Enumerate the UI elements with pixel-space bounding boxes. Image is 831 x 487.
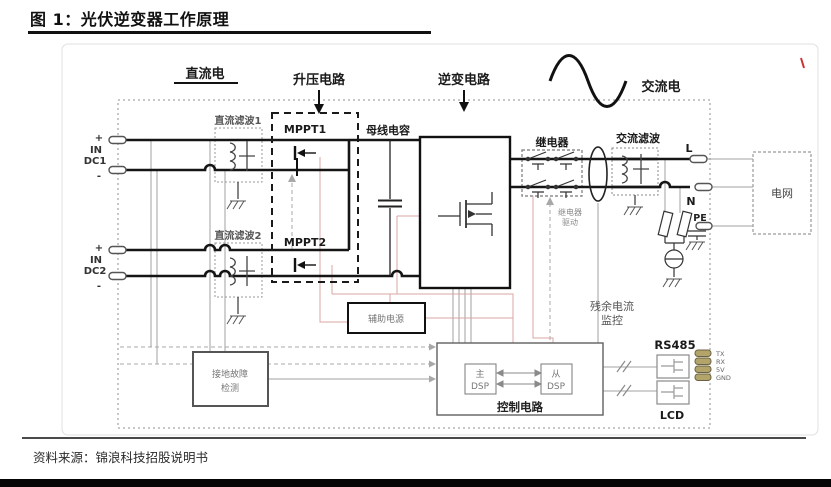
boost-section-label: 升压电路 [293,72,346,88]
control-label: 控制电路 [497,400,543,414]
mppt1-label: MPPT1 [284,123,326,136]
slave-dsp-label-1: 从 [551,369,560,380]
ac-section-label: 交流电 [641,79,680,95]
inverter-schematic: 直流电 升压电路 逆变电路 交流电 直流滤波1 直流滤波2 MPPT1 MPPT… [0,0,831,487]
rs485-label: RS485 [654,338,695,352]
main-dsp-label-2: DSP [471,382,490,392]
tx-label: TX [715,350,725,358]
grid-label: 电网 [771,187,793,200]
source-divider [22,437,806,439]
dc1-minus-label: - [97,171,101,182]
slave-dsp-label-2: DSP [547,382,566,392]
v5-label: 5V [716,366,725,374]
relay-drive-label-1: 继电器 [558,207,582,217]
main-dsp-label-1: 主 [475,368,484,380]
report-figure: 图 1：光伏逆变器工作原理 [0,0,831,487]
dc1-name-label: DC1 [84,156,107,167]
relay-box [522,150,582,196]
residual-current-label-2: 监控 [601,313,623,327]
ground-fault-label-2: 检测 [221,382,239,394]
bus-cap-label: 母线电容 [366,123,410,137]
dc-section-label: 直流电 [185,66,224,82]
dc2-in-label: IN [90,255,102,266]
dc-filter1-label: 直流滤波1 [215,114,262,127]
gnd-label: GND [716,374,731,382]
relay-drive-label-2: 驱动 [562,217,578,227]
dc2-plus-label: + [95,243,103,254]
relay-label: 继电器 [536,135,570,149]
page-bottom-bar [0,479,831,487]
neutral-terminal-label: N [686,195,695,208]
lcd-label: LCD [660,409,684,422]
dc2-name-label: DC2 [84,266,107,277]
line-terminal-label: L [685,142,692,155]
rx-label: RX [716,358,726,366]
residual-current-label-1: 残余电流 [590,299,634,313]
inverter-block [420,137,510,288]
inverter-section-label: 逆变电路 [438,72,491,88]
pe-terminal-label: PE [693,213,706,224]
dc-filter2-label: 直流滤波2 [215,229,262,242]
dc1-plus-label: + [95,133,103,144]
dc1-in-label: IN [90,145,102,156]
aux-power-label: 辅助电源 [368,313,404,325]
dc2-minus-label: - [97,281,101,292]
dc-filter1-box [215,128,262,182]
mppt2-label: MPPT2 [284,236,326,249]
ground-fault-label-1: 接地故障 [212,368,248,380]
source-note: 资料来源：锦浪科技招股说明书 [33,447,208,466]
ac-filter-label: 交流滤波 [616,131,661,145]
